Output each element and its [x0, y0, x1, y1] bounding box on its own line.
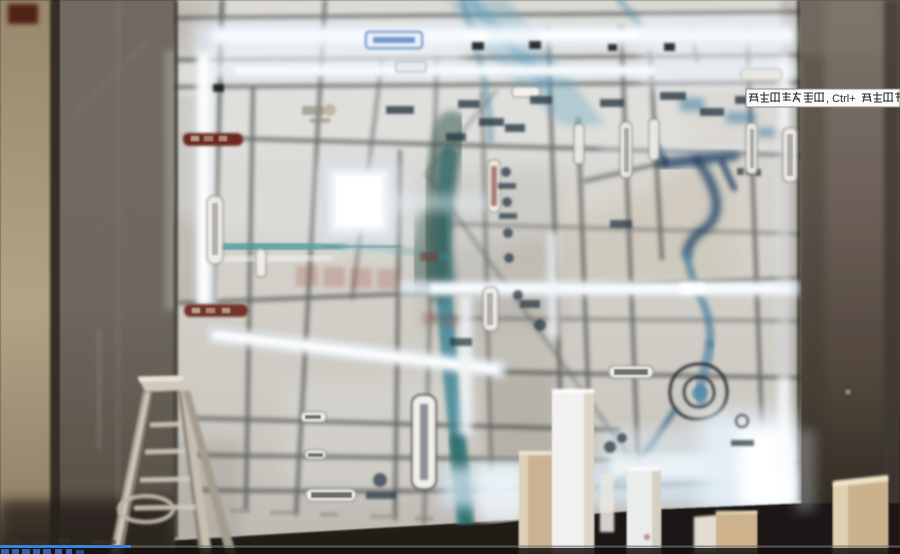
svg-text:, Ctrl+: , Ctrl+	[826, 93, 856, 105]
